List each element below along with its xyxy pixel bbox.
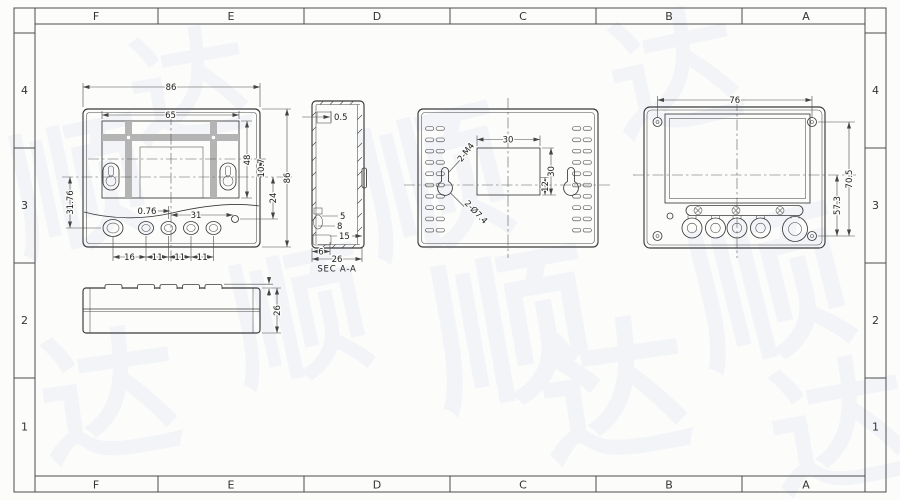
corner-screw-center: [811, 235, 814, 238]
terminal-port: [706, 218, 726, 238]
button-small-inner: [209, 225, 217, 232]
grid-row-label-left: 3: [21, 199, 28, 212]
grid-row-label-right: 4: [872, 84, 879, 97]
dim-front-height-outer: 86: [283, 173, 293, 184]
display-pin-hole: [126, 135, 130, 139]
corner-screw: [808, 232, 817, 241]
dim-section-c: 15: [339, 232, 350, 242]
technical-drawing-sheet: 顺 达 顺 顺 达 达 顺 达 达 顺 F E D C B A F E: [0, 0, 900, 500]
dim-height-b: 57.3: [833, 196, 843, 215]
corner-screw-center: [811, 121, 814, 124]
display-shade-bar: [210, 121, 217, 198]
dim-display-height: 48: [243, 155, 253, 166]
wiring-cutout: [477, 148, 540, 195]
callout-holes: 2-Ø7.4: [462, 198, 490, 226]
grid-col-label-top: D: [373, 10, 381, 23]
button-small: [206, 222, 221, 235]
dim-front-width-inner: 65: [165, 111, 176, 121]
callout-screws: 2-M4: [456, 141, 477, 164]
dim-screw-spacing: 76: [729, 96, 740, 106]
front-housing-inner-line: [87, 113, 257, 244]
keyhole-slot-left-hole: [106, 176, 116, 186]
corner-screw-center: [656, 121, 659, 124]
keyhole-slot-right-slot: [226, 166, 231, 176]
section-title: SEC A-A: [317, 265, 356, 275]
terminal-port-large: [783, 217, 808, 242]
corner-screw: [808, 118, 817, 127]
terminal-screw-cross: [777, 208, 782, 213]
dim-height-a: 70.5: [845, 170, 855, 189]
dim-center-offset: 10.7: [257, 159, 267, 178]
dim-button-spacing: 11: [197, 253, 208, 263]
terminal-screw-cross: [695, 208, 700, 213]
corner-screw-center: [656, 235, 659, 238]
extension-lines: [312, 111, 362, 262]
button-large: [103, 220, 123, 237]
front-view: 86 65 48 10.7 24 86 31.76 0.76 31 16 11 …: [62, 83, 293, 263]
terminal-port: [682, 218, 702, 238]
keyhole-slot-right-hole: [223, 176, 233, 186]
drawing-canvas: F E D C B A F E D C B A 4 3 2 1 4 3 2 1: [0, 0, 900, 500]
frame-inner-border: [35, 24, 865, 476]
dim-section-d: 6: [318, 248, 323, 258]
terminal-port-hole: [756, 223, 766, 233]
dim-cutout-width: 30: [503, 136, 514, 146]
grid-row-label-left: 1: [21, 421, 28, 434]
frame-outer-border: [14, 8, 886, 492]
button-small: [161, 222, 176, 235]
display-pin-hole: [211, 135, 215, 139]
display-frame-inner: [670, 119, 806, 199]
display-shade-bar: [102, 134, 239, 141]
terminal-port-hole: [711, 223, 721, 233]
dim-led-drop: 24: [269, 193, 279, 204]
corner-screw: [653, 118, 662, 127]
led-indicator-hole: [232, 216, 239, 223]
grid-col-label-bottom: D: [373, 479, 381, 492]
button-section-detail: [314, 208, 322, 214]
button-small-inner: [142, 225, 150, 232]
front-display-opening: [102, 121, 239, 198]
terminal-stems: [688, 216, 799, 220]
grid-row-label-right: 1: [872, 421, 879, 434]
grid-col-label-top: C: [519, 10, 527, 23]
grid-col-label-top: B: [665, 10, 673, 23]
reset-hole: [667, 213, 673, 219]
vent-slots-left: [425, 124, 446, 237]
terminal-housing-inner-line: [647, 110, 822, 245]
dim-section-depth: 26: [332, 255, 343, 265]
terminal-channel: [686, 206, 803, 216]
grid-col-label-bottom: A: [802, 479, 810, 492]
button-large-inner: [107, 223, 119, 233]
dim-bottom-height: 26: [273, 305, 283, 316]
dim-offset: 12: [541, 181, 551, 192]
grid-col-label-top: A: [802, 10, 810, 23]
dim-button-spacing: 11: [152, 253, 163, 263]
dim-section-a: 5: [340, 212, 345, 222]
drawing-frame: F E D C B A F E D C B A 4 3 2 1 4 3 2 1: [14, 8, 886, 492]
grid-row-label-left: 4: [21, 84, 28, 97]
lcd-window: [140, 147, 203, 198]
dim-led-offset: 31: [191, 211, 202, 221]
grid-col-label-bottom: C: [519, 479, 527, 492]
button-section-detail: [313, 235, 331, 245]
terminal-housing-outline: [644, 107, 825, 248]
button-small-inner: [187, 225, 195, 232]
grid-row-label-right: 2: [872, 314, 879, 327]
dim-button-offset: 0.76: [138, 207, 157, 217]
display-shade-bar: [125, 121, 132, 198]
grid-col-label-bottom: B: [665, 479, 673, 492]
corner-screw: [653, 232, 662, 241]
button-small: [184, 222, 199, 235]
dim-section-b: 8: [337, 222, 342, 232]
frame-column-dividers: [35, 8, 865, 492]
terminal-port-hole: [687, 223, 697, 233]
display-frame-outer: [665, 114, 810, 203]
section-view: 0.5 5 8 15 6 26 SEC A-A: [302, 101, 367, 275]
grid-col-label-bottom: F: [93, 479, 99, 492]
terminal-view: 76 70.5 57.3: [633, 96, 856, 258]
button-small-inner: [164, 225, 172, 232]
terminal-port: [751, 218, 771, 238]
button-small: [139, 222, 154, 235]
dim-cutout-height: 30: [547, 166, 557, 177]
keyhole-slot-left-slot: [109, 166, 114, 176]
terminal-port-large-hole: [789, 223, 802, 236]
bottom-housing-outline: [83, 288, 260, 333]
break-wave-line: [84, 204, 259, 217]
dim-left-height: 31.76: [66, 190, 76, 214]
dim-wall-thickness: 0.5: [334, 113, 348, 123]
grid-col-label-bottom: E: [228, 479, 235, 492]
terminal-screw-cross: [733, 208, 738, 213]
grid-row-label-right: 3: [872, 199, 879, 212]
dim-front-width-outer: 86: [166, 83, 177, 93]
grid-col-label-top: F: [93, 10, 99, 23]
back-view: 30 30 12 2-M4 2-Ø7.4: [404, 98, 612, 258]
button-section-detail: [314, 215, 323, 229]
grid-col-label-top: E: [228, 10, 235, 23]
front-housing-outline: [83, 109, 260, 247]
dim-button-spacing: 11: [174, 253, 185, 263]
dim-button-spacing: 16: [124, 253, 135, 263]
bottom-view: 26: [83, 277, 283, 333]
bezel-detail: [317, 112, 331, 123]
grid-row-label-left: 2: [21, 314, 28, 327]
